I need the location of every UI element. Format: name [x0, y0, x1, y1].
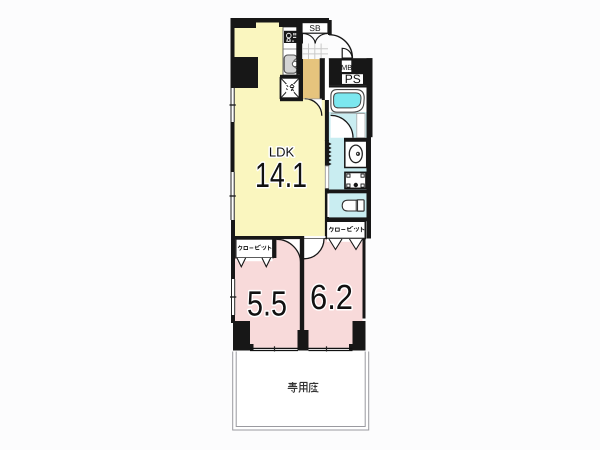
svg-text:6.2: 6.2	[310, 278, 353, 317]
svg-text:MB: MB	[341, 63, 352, 72]
svg-text:PS: PS	[345, 72, 361, 86]
svg-text:14.1: 14.1	[255, 156, 307, 195]
svg-text:5.5: 5.5	[247, 285, 287, 324]
svg-text:SB: SB	[309, 23, 321, 33]
